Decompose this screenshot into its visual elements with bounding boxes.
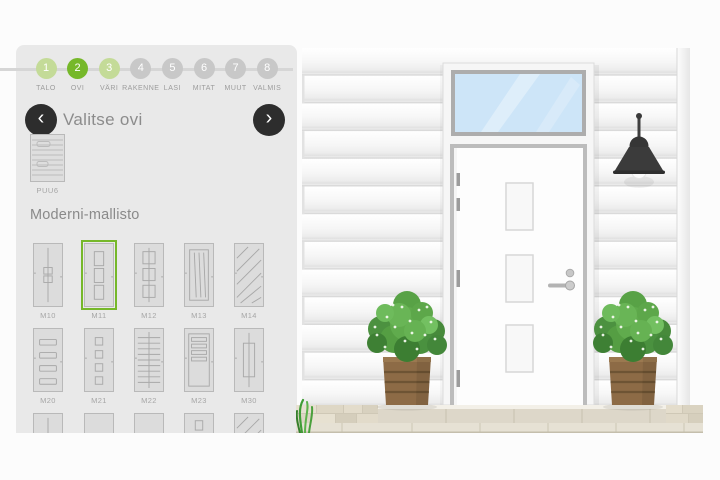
door-model-cell [177, 413, 221, 433]
door-model-label: M10 [26, 311, 70, 320]
door-pattern [135, 244, 163, 306]
stone-masonry-right [666, 405, 703, 423]
door-model-cell: M22 [127, 328, 171, 405]
door-model-label: M30 [227, 396, 271, 405]
door-model-label: M20 [26, 396, 70, 405]
door-model-tile-m14[interactable] [234, 243, 264, 307]
door-model-cell: M20 [26, 328, 70, 405]
door-model-cell: M12 [127, 243, 171, 320]
door-pattern [135, 414, 163, 433]
front-door-preview [440, 63, 599, 405]
door-pattern [34, 329, 62, 391]
door-model-grid: M10M11M12M13M14M20M21M22M23M30 [16, 45, 297, 433]
door-model-label: M11 [77, 311, 121, 320]
door-pattern [185, 414, 213, 433]
door-pattern [135, 329, 163, 391]
corner-trim [677, 48, 690, 405]
house-preview [296, 45, 708, 433]
door-model-tile-m30[interactable] [234, 328, 264, 392]
door-model-label: M13 [177, 311, 221, 320]
door-model-cell: M23 [177, 328, 221, 405]
stepper-line [0, 68, 17, 71]
door-model-cell: M21 [77, 328, 121, 405]
door-model-tile-m20[interactable] [33, 328, 63, 392]
door-model-tile[interactable] [184, 413, 214, 433]
door-model-tile-m12[interactable] [134, 243, 164, 307]
door-model-label: M14 [227, 311, 271, 320]
door-model-tile-m13[interactable] [184, 243, 214, 307]
door-pattern [185, 329, 213, 391]
door-model-cell: M14 [227, 243, 271, 320]
door-model-tile-m11[interactable] [84, 243, 114, 307]
door-model-tile[interactable] [234, 413, 264, 433]
door-model-label: M12 [127, 311, 171, 320]
door-pattern [235, 329, 263, 391]
door-pattern [235, 414, 263, 433]
door-pattern [85, 414, 113, 433]
door-pattern [85, 244, 113, 306]
door-model-cell: M11 [77, 243, 121, 320]
door-model-cell: M10 [26, 243, 70, 320]
door-pattern [34, 244, 62, 306]
door-pattern [34, 414, 62, 433]
door-pattern [185, 244, 213, 306]
door-model-label: M23 [177, 396, 221, 405]
door-model-cell [77, 413, 121, 433]
door-model-cell [127, 413, 171, 433]
door-model-cell: M13 [177, 243, 221, 320]
door-model-tile[interactable] [33, 413, 63, 433]
door-pattern [85, 329, 113, 391]
door-model-tile[interactable] [84, 413, 114, 433]
door-model-tile-m23[interactable] [184, 328, 214, 392]
door-model-tile-m10[interactable] [33, 243, 63, 307]
door-model-label: M22 [127, 396, 171, 405]
door-model-cell: M30 [227, 328, 271, 405]
transom-window [451, 70, 586, 136]
door-model-cell [227, 413, 271, 433]
door-pattern [235, 244, 263, 306]
door-model-cell [26, 413, 70, 433]
door-model-label: M21 [77, 396, 121, 405]
door-model-tile-m22[interactable] [134, 328, 164, 392]
door-model-tile[interactable] [134, 413, 164, 433]
door-model-tile-m21[interactable] [84, 328, 114, 392]
door-config-sidebar: 1TALO2OVI3VÄRI4RAKENNE5LASI6MITAT7MUUT8V… [16, 45, 297, 433]
door-glass-panels [506, 183, 533, 372]
